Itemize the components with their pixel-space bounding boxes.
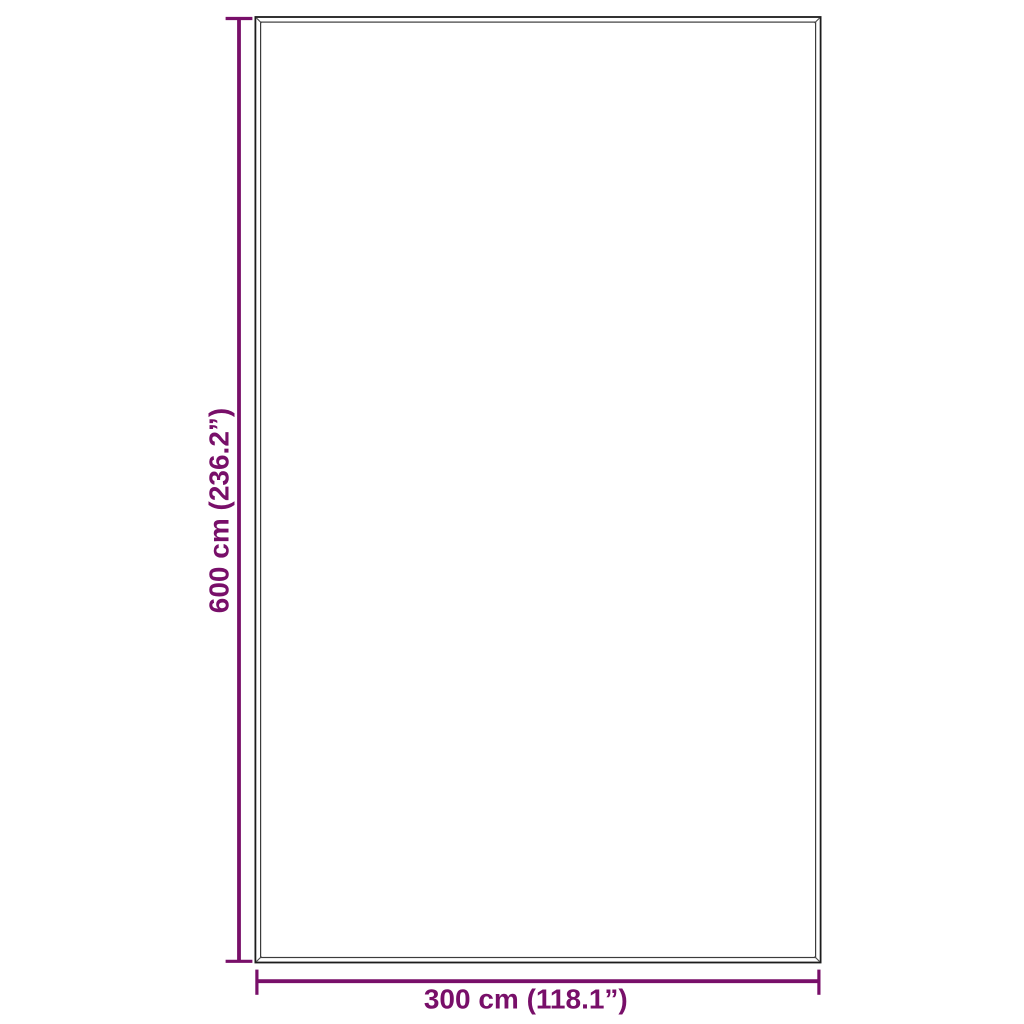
svg-text:300 cm (118.1”): 300 cm (118.1”) xyxy=(424,983,628,1014)
svg-text:600 cm (236.2”): 600 cm (236.2”) xyxy=(204,408,235,613)
